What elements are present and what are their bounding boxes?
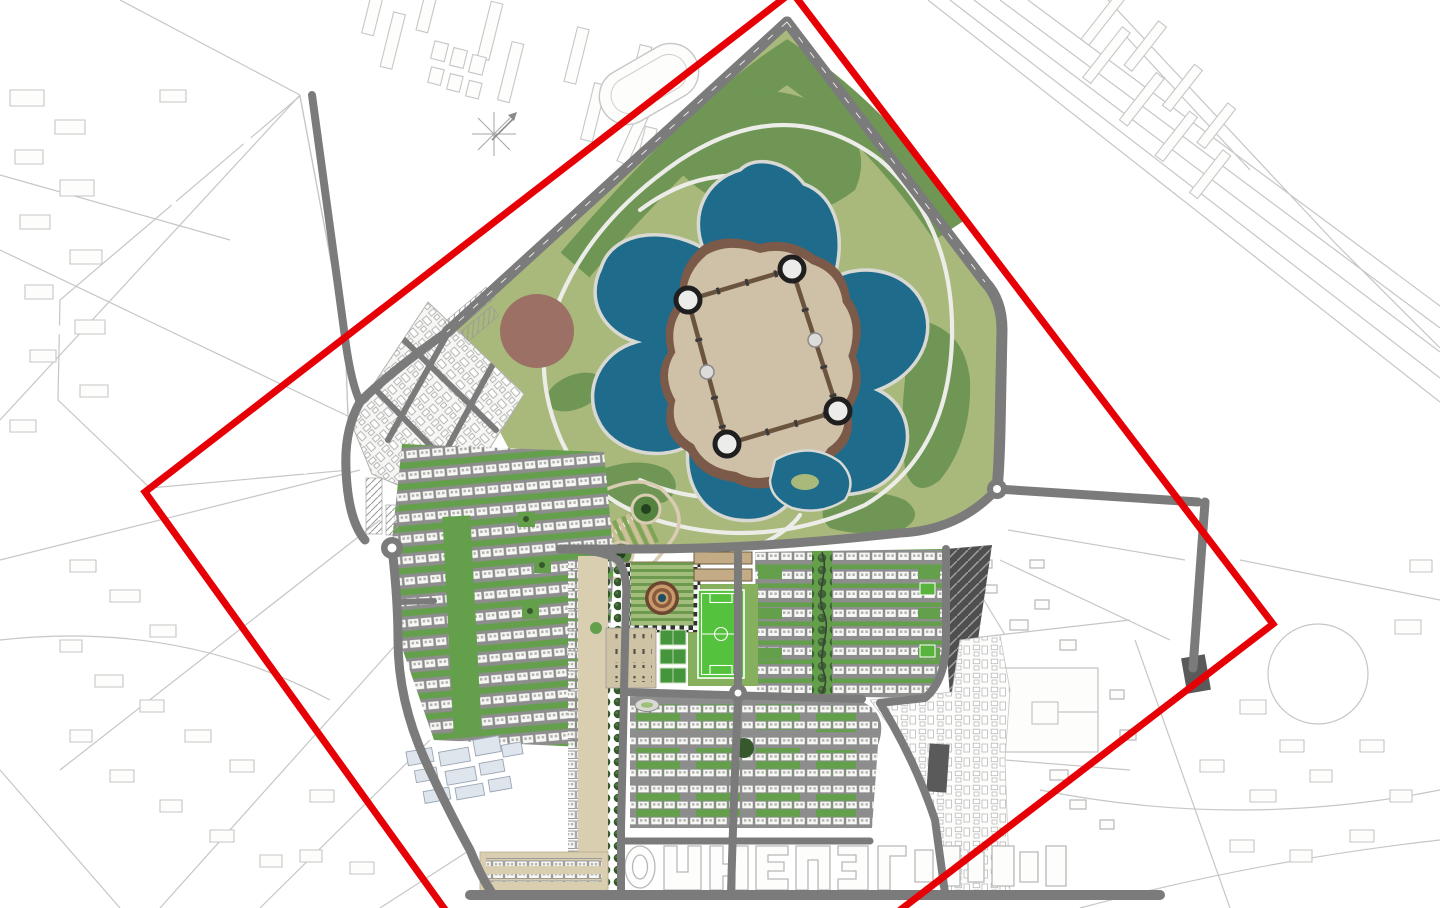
- sport-courts: [660, 630, 686, 683]
- context-street-left-3: [150, 170, 330, 420]
- hall-g: [878, 846, 906, 890]
- residential-south: [630, 694, 881, 828]
- village-dark-building: [926, 743, 949, 792]
- south-district-courtyards: [630, 694, 878, 828]
- hall-e: [756, 846, 788, 890]
- citadel-tower-se: [826, 399, 850, 423]
- citadel-tower-w-mid: [700, 365, 714, 379]
- market-stalls-1: [486, 858, 602, 866]
- brown-plaza-circle: [500, 294, 574, 368]
- east-rows-fill: [755, 549, 946, 698]
- island-sand: [668, 248, 853, 478]
- hall-n: [796, 846, 830, 890]
- roundabout-northeast: [987, 479, 1007, 499]
- boulevard-paving: [578, 556, 608, 893]
- context-bottomleft-buildings: [60, 560, 374, 874]
- boundary-parking-strips: [366, 478, 398, 535]
- garden-tree-core-1: [641, 504, 651, 514]
- roundabout-west: [381, 537, 403, 559]
- long-building-2: [694, 569, 752, 581]
- industrial-halls: [625, 846, 1066, 890]
- existing-blue-cluster: [406, 732, 529, 807]
- citadel-tower-e-mid: [808, 333, 822, 347]
- parking-lot: [606, 628, 656, 688]
- boulevard-houses-west: [568, 560, 578, 892]
- masterplan-canvas: [0, 0, 1440, 908]
- gas-holder-circle: [1268, 624, 1368, 724]
- context-se-buildings: [1200, 560, 1432, 862]
- mini-stadium: [635, 699, 659, 712]
- orchard-garden: [624, 562, 700, 632]
- roundabout-central: [729, 684, 747, 702]
- north-arrow: [472, 112, 517, 156]
- context-ne-slabs: [1048, 0, 1269, 199]
- long-building-1: [694, 552, 752, 564]
- hall-e-mirror: [838, 846, 868, 890]
- market-stalls-2: [486, 874, 602, 882]
- small-green-plaza: [589, 621, 603, 635]
- hall-o-inner: [633, 855, 648, 879]
- context-ne-slab-group: [1048, 0, 1269, 199]
- road-west-connector: [398, 601, 434, 602]
- citadel-tower-nw: [676, 288, 700, 312]
- citadel-tower-ne: [780, 257, 804, 281]
- citadel-tower-sw: [715, 432, 739, 456]
- courtyard-block: [1002, 668, 1098, 752]
- masterplan-svg: [0, 0, 1440, 908]
- orchard-fountain: [645, 581, 679, 615]
- hall-u1: [664, 846, 701, 890]
- south-pond-island: [791, 474, 819, 490]
- context-left-wedge-blocks: [58, 96, 350, 488]
